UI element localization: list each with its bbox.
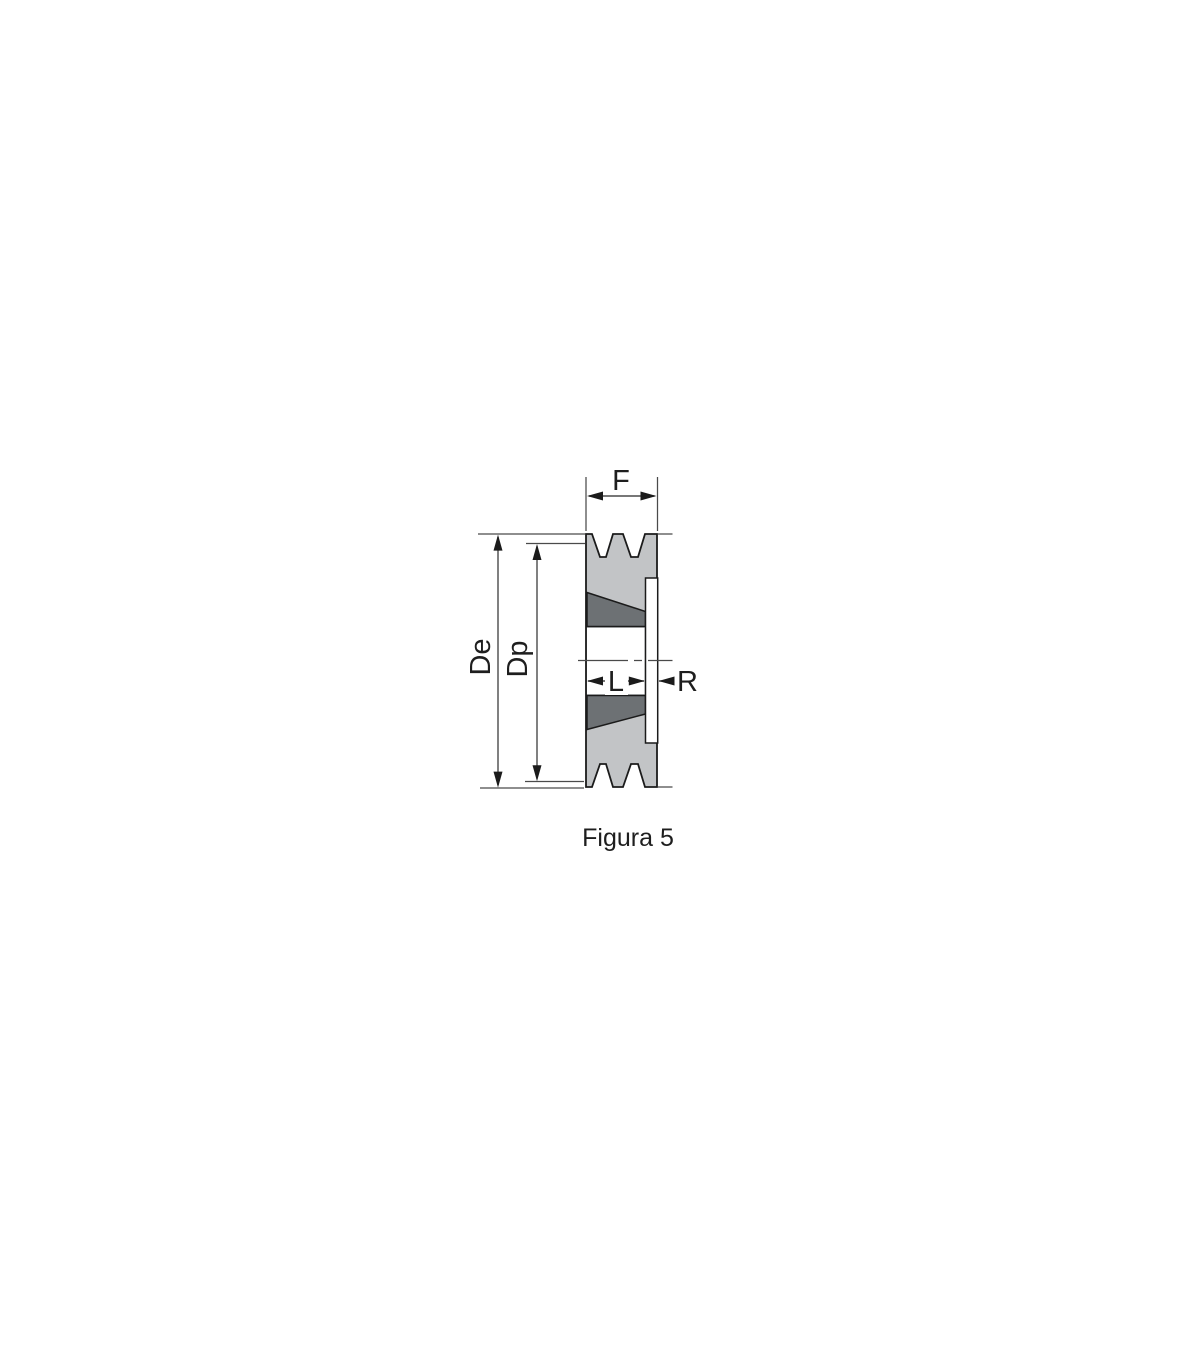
pulley-figure-page: F De Dp L <box>0 0 1200 1372</box>
arrowhead-left-icon <box>587 492 603 501</box>
dimension-R: R <box>659 666 698 698</box>
arrowhead-left-icon <box>659 677 675 686</box>
label-outer-diameter: De <box>465 638 497 675</box>
label-face-width: F <box>612 465 630 497</box>
arrowhead-down-icon <box>494 772 503 788</box>
figure-caption: Figura 5 <box>582 824 674 852</box>
arrowhead-up-icon <box>494 535 503 551</box>
dimension-F: F <box>586 465 658 531</box>
dimension-Dp: Dp <box>502 544 585 782</box>
label-bushing-length: L <box>608 666 624 698</box>
arrowhead-down-icon <box>533 765 542 781</box>
label-pitch-diameter: Dp <box>502 640 534 677</box>
arrowhead-up-icon <box>533 544 542 560</box>
arrowhead-right-icon <box>641 492 657 501</box>
pulley-technical-drawing: F De Dp L <box>0 0 1200 1372</box>
label-flange-offset: R <box>677 666 698 698</box>
